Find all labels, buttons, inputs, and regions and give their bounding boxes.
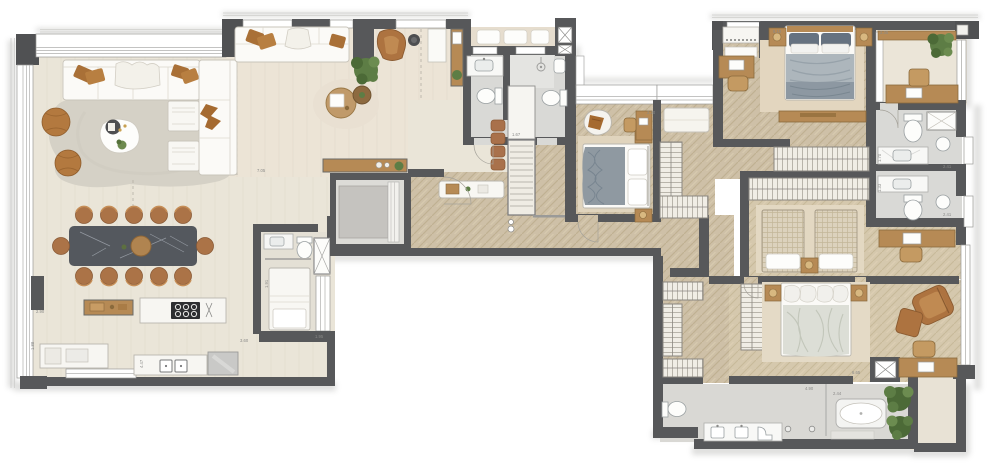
svg-text:7.05: 7.05 (257, 168, 266, 173)
svg-text:4.47: 4.47 (139, 359, 144, 368)
svg-text:1.88: 1.88 (30, 341, 35, 350)
svg-text:2.90: 2.90 (36, 309, 45, 314)
svg-text:2.30: 2.30 (647, 110, 656, 115)
svg-text:2.35: 2.35 (880, 30, 889, 35)
svg-text:1.95: 1.95 (315, 334, 324, 339)
svg-text:6.65: 6.65 (852, 370, 861, 375)
svg-text:1.33: 1.33 (877, 183, 882, 192)
svg-text:3.60: 3.60 (240, 338, 249, 343)
svg-text:1.91: 1.91 (264, 279, 269, 288)
svg-text:1.67: 1.67 (512, 132, 521, 137)
svg-text:4.90: 4.90 (805, 386, 814, 391)
svg-text:2.41: 2.41 (943, 212, 952, 217)
svg-text:5.10: 5.10 (773, 29, 782, 34)
svg-text:2.44: 2.44 (833, 391, 842, 396)
svg-text:1.70: 1.70 (877, 153, 882, 162)
svg-text:2.41: 2.41 (943, 164, 952, 169)
